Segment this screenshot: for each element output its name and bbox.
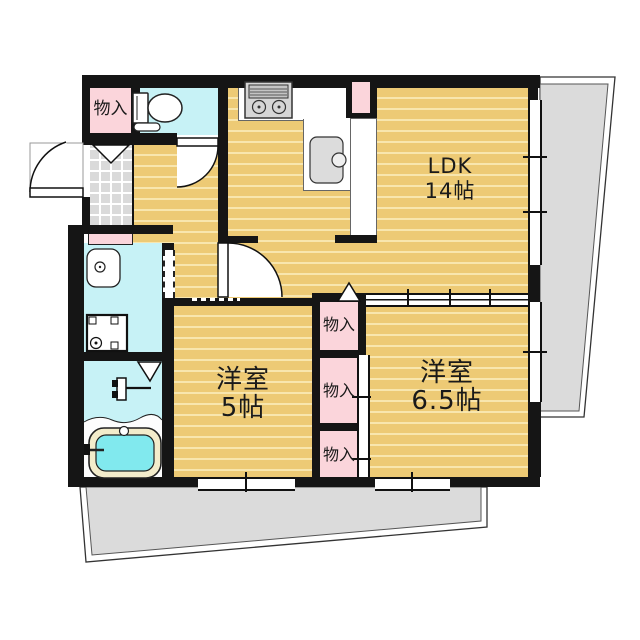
bath-folding-door-marker xyxy=(138,362,161,381)
kitchen-sink-icon xyxy=(310,137,346,183)
ldk-door-icon xyxy=(218,243,282,297)
entry-step-marker xyxy=(93,145,129,163)
bedroom65-name: 洋室 xyxy=(381,359,513,387)
toilet-icon xyxy=(133,93,182,131)
bedroom5-label: 洋室 5帖 xyxy=(177,366,309,422)
bathtub-icon xyxy=(84,414,162,478)
toilet-door-icon xyxy=(177,138,218,187)
bedroom65-label: 洋室 6.5帖 xyxy=(381,359,513,415)
storage-door-marker xyxy=(338,283,360,301)
bedroom5-size: 5帖 xyxy=(177,394,309,422)
storage-middle-label: 物入 xyxy=(318,381,360,400)
bedroom5-name: 洋室 xyxy=(177,366,309,394)
storage-upper-label: 物入 xyxy=(318,315,360,334)
ldk-label: LDK 14帖 xyxy=(385,154,515,204)
storage-entry-label: 物入 xyxy=(88,99,133,120)
bedroom65-size: 6.5帖 xyxy=(381,387,513,415)
ldk-size: 14帖 xyxy=(385,179,515,204)
entrance-door-icon xyxy=(30,142,83,197)
ldk-name: LDK xyxy=(385,154,515,179)
storage-lower-label: 物入 xyxy=(318,445,360,464)
bath-faucet-icon xyxy=(112,378,151,400)
washbasin-icon xyxy=(87,249,120,287)
washing-machine-pan-icon xyxy=(87,315,127,351)
kitchen-stove-icon xyxy=(245,82,292,118)
floor-plan: 物入 LDK 14帖 洋室 5帖 洋室 6.5帖 物入 物入 物入 xyxy=(0,0,640,640)
